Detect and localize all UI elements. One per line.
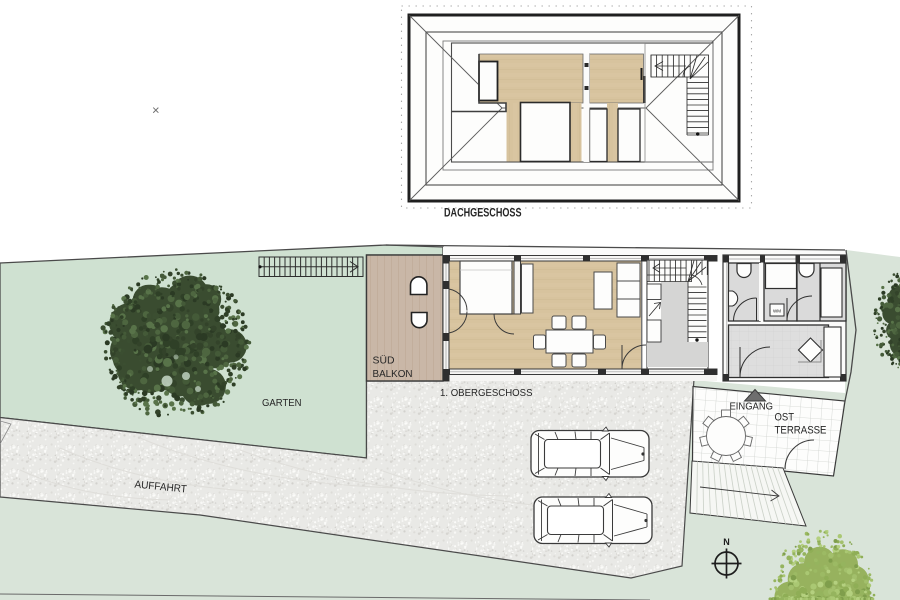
svg-text:WM: WM <box>773 309 781 314</box>
svg-text:EINGANG: EINGANG <box>730 402 774 413</box>
svg-text:N: N <box>723 537 730 547</box>
svg-text:OST: OST <box>775 412 795 424</box>
svg-text:1. OBERGESCHOSS: 1. OBERGESCHOSS <box>440 388 533 399</box>
svg-text:×: × <box>152 103 160 118</box>
svg-text:BALKON: BALKON <box>373 369 413 380</box>
svg-text:DACHGESCHOSS: DACHGESCHOSS <box>444 208 522 220</box>
svg-text:GARTEN: GARTEN <box>262 397 302 409</box>
svg-text:SÜD: SÜD <box>373 355 395 367</box>
svg-text:TERRASSE: TERRASSE <box>775 425 827 437</box>
